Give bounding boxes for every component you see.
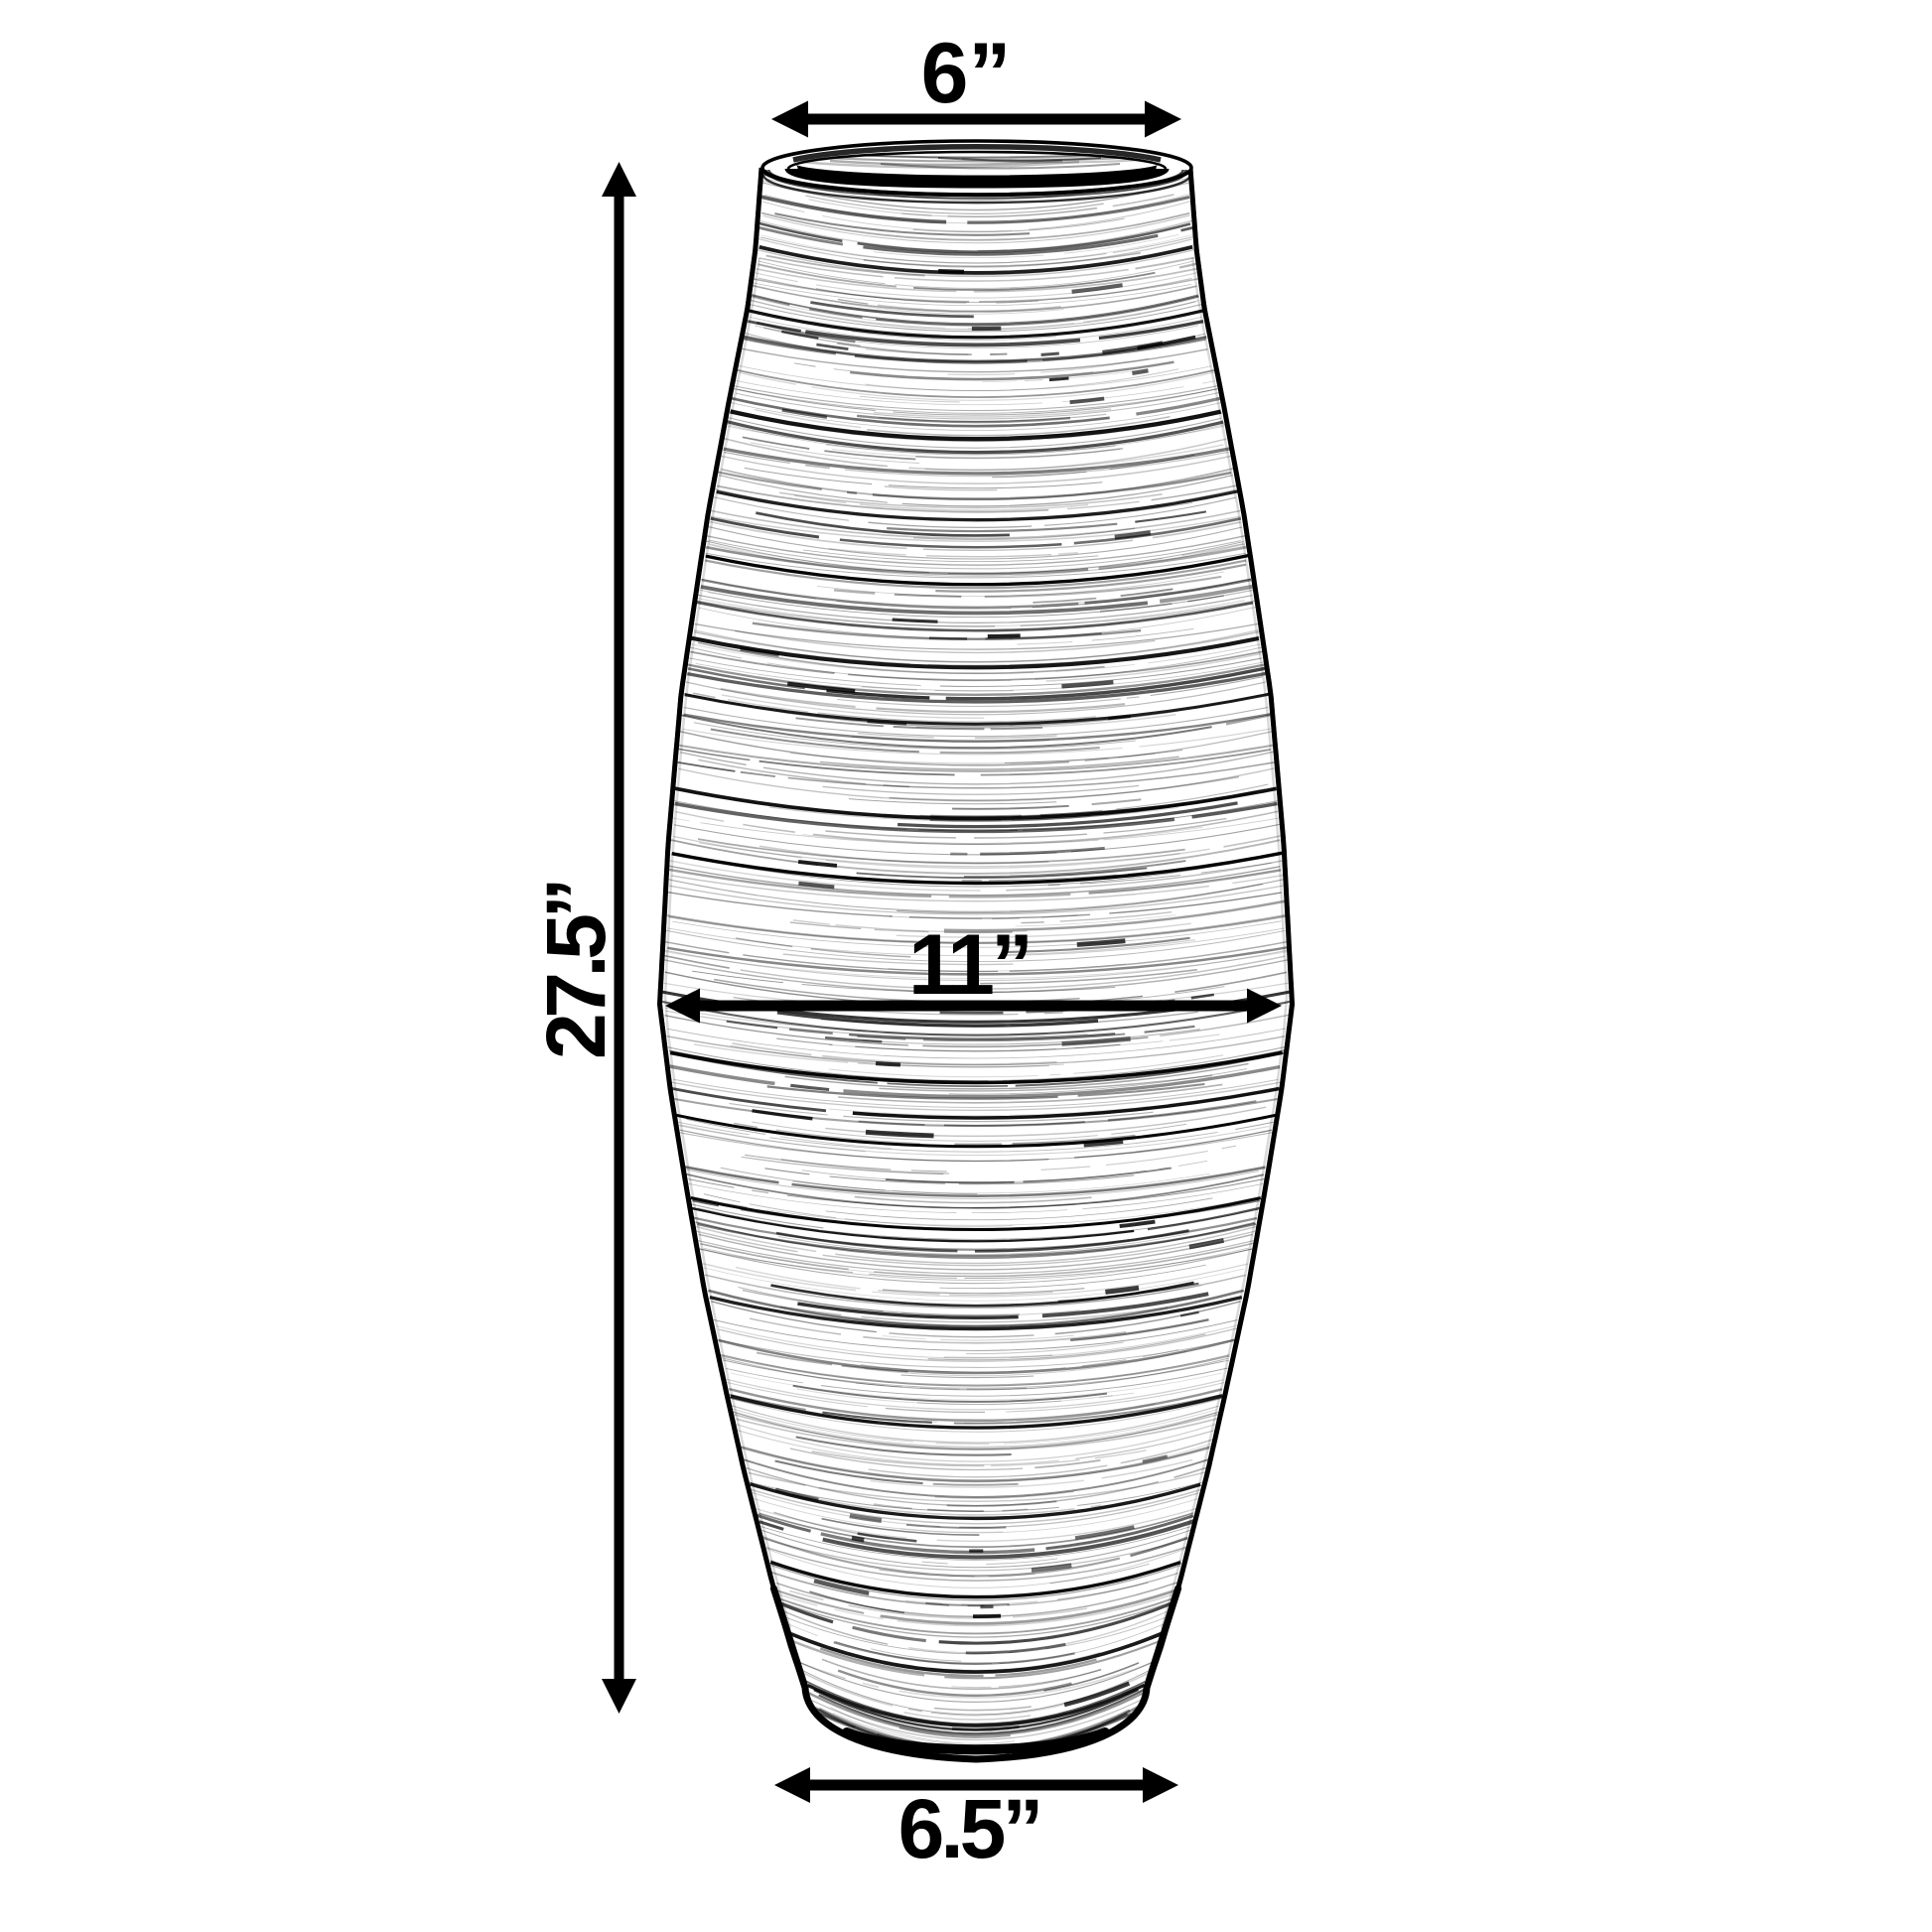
svg-text:6.5”: 6.5”	[898, 1782, 1040, 1875]
svg-text:27.5”: 27.5”	[529, 883, 622, 1059]
svg-text:11”: 11”	[908, 917, 1030, 1013]
svg-text:6”: 6”	[921, 26, 1012, 121]
